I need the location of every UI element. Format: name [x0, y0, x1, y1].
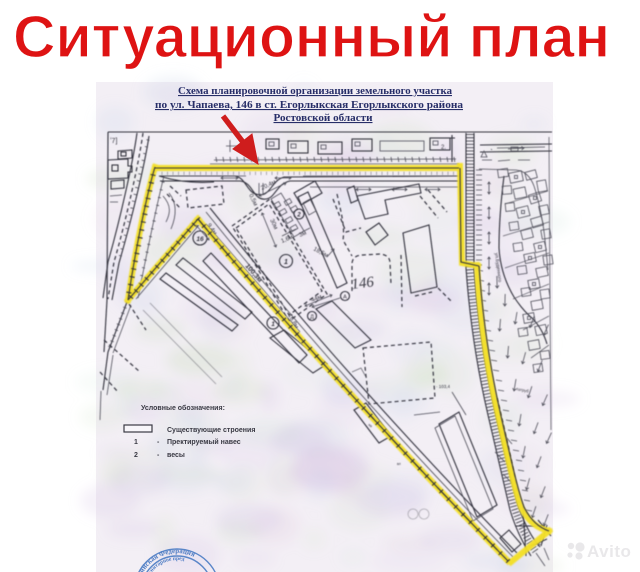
svg-text:16: 16 — [196, 236, 204, 243]
svg-text:· 103,4: · 103,4 — [436, 384, 451, 389]
svg-text:ʻ7]: ʻ7] — [110, 137, 117, 145]
svg-text:Схема планировочной организаци: Схема планировочной организации земельно… — [178, 85, 452, 97]
svg-text:Условные обозначения:: Условные обозначения: — [141, 404, 225, 412]
svg-text:Avito: Avito — [587, 542, 631, 561]
svg-text:1: 1 — [271, 321, 275, 328]
svg-text:2: 2 — [296, 213, 301, 219]
svg-text:1: 1 — [284, 259, 288, 266]
svg-text:Д: Д — [310, 315, 314, 321]
svg-text:по ул. Чапаева, 146 в ст. Егор: по ул. Чапаева, 146 в ст. Егорлыкская Ег… — [155, 99, 464, 111]
svg-text:Пректируемый навес: Пректируемый навес — [167, 438, 241, 446]
svg-text:Ростовской области: Ростовской области — [274, 112, 374, 124]
svg-text:Существующие строения: Существующие строения — [167, 427, 255, 434]
svg-text:146: 146 — [351, 274, 376, 293]
svg-text:2: 2 — [134, 452, 138, 459]
svg-text:вл: вл — [397, 462, 401, 466]
svg-text:1: 1 — [134, 439, 138, 446]
svg-text:весы: весы — [167, 452, 185, 459]
svg-text:Ситуационный план: Ситуационный план — [13, 4, 610, 70]
svg-text:2.: 2. — [441, 145, 446, 151]
svg-text:А: А — [343, 295, 347, 301]
